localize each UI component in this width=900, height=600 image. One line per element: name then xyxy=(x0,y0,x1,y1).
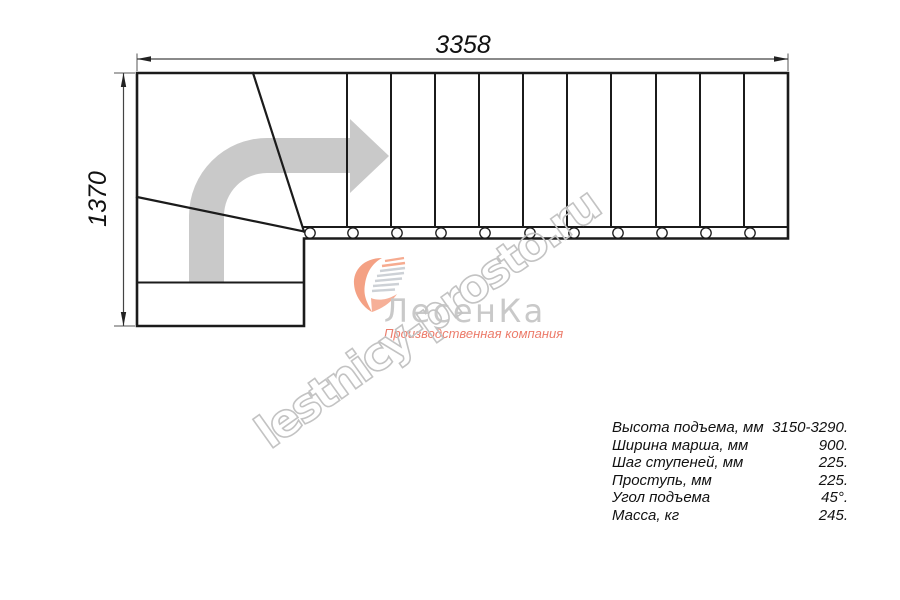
spec-value: 225. xyxy=(819,454,848,472)
spec-row: Масса, кг 245. xyxy=(612,507,848,525)
spec-row: Проступь, мм 225. xyxy=(612,472,848,490)
baluster-circle xyxy=(348,228,358,238)
specs-table: Высота подъема, мм 3150-3290. Ширина мар… xyxy=(612,419,848,524)
baluster-circle xyxy=(657,228,667,238)
baluster-circle xyxy=(305,228,315,238)
heart-step-lines xyxy=(372,268,405,291)
baluster-circle xyxy=(613,228,623,238)
spec-value: 900. xyxy=(819,437,848,455)
dimension-arrowhead xyxy=(121,312,126,326)
left-dimension: 1370 xyxy=(84,73,135,326)
spec-row: Ширина марша, мм 900. xyxy=(612,437,848,455)
dimension-arrowhead xyxy=(121,73,126,87)
dimension-arrowhead xyxy=(137,56,151,61)
width-dimension-label: 3358 xyxy=(435,31,491,59)
top-dimension: 3358 xyxy=(137,31,788,71)
dimension-arrowhead xyxy=(774,56,788,61)
spec-value: 225. xyxy=(819,472,848,490)
spec-row: Угол подъема 45°. xyxy=(612,489,848,507)
spec-label: Ширина марша, мм xyxy=(612,437,748,455)
baluster-circle xyxy=(436,228,446,238)
spec-label: Высота подъема, мм xyxy=(612,419,764,437)
direction-arrow xyxy=(189,119,389,283)
spec-label: Угол подъема xyxy=(612,489,710,507)
baluster-circle xyxy=(392,228,402,238)
technical-drawing-canvas: 3358 1370 ЛесенКа Производст xyxy=(0,0,900,600)
spec-label: Проступь, мм xyxy=(612,472,712,490)
spec-value: 3150-3290. xyxy=(772,419,848,437)
heart-peach-lines xyxy=(382,258,405,266)
spec-value: 245. xyxy=(819,507,848,525)
baluster-circle xyxy=(701,228,711,238)
spec-value: 45°. xyxy=(821,489,848,507)
spec-label: Шаг ступеней, мм xyxy=(612,454,743,472)
direction-arrow-shape xyxy=(189,119,389,283)
spec-row: Шаг ступеней, мм 225. xyxy=(612,454,848,472)
spec-row: Высота подъема, мм 3150-3290. xyxy=(612,419,848,437)
baluster-circle xyxy=(745,228,755,238)
baluster-circle xyxy=(480,228,490,238)
height-dimension-label: 1370 xyxy=(84,171,112,227)
spec-label: Масса, кг xyxy=(612,507,679,525)
